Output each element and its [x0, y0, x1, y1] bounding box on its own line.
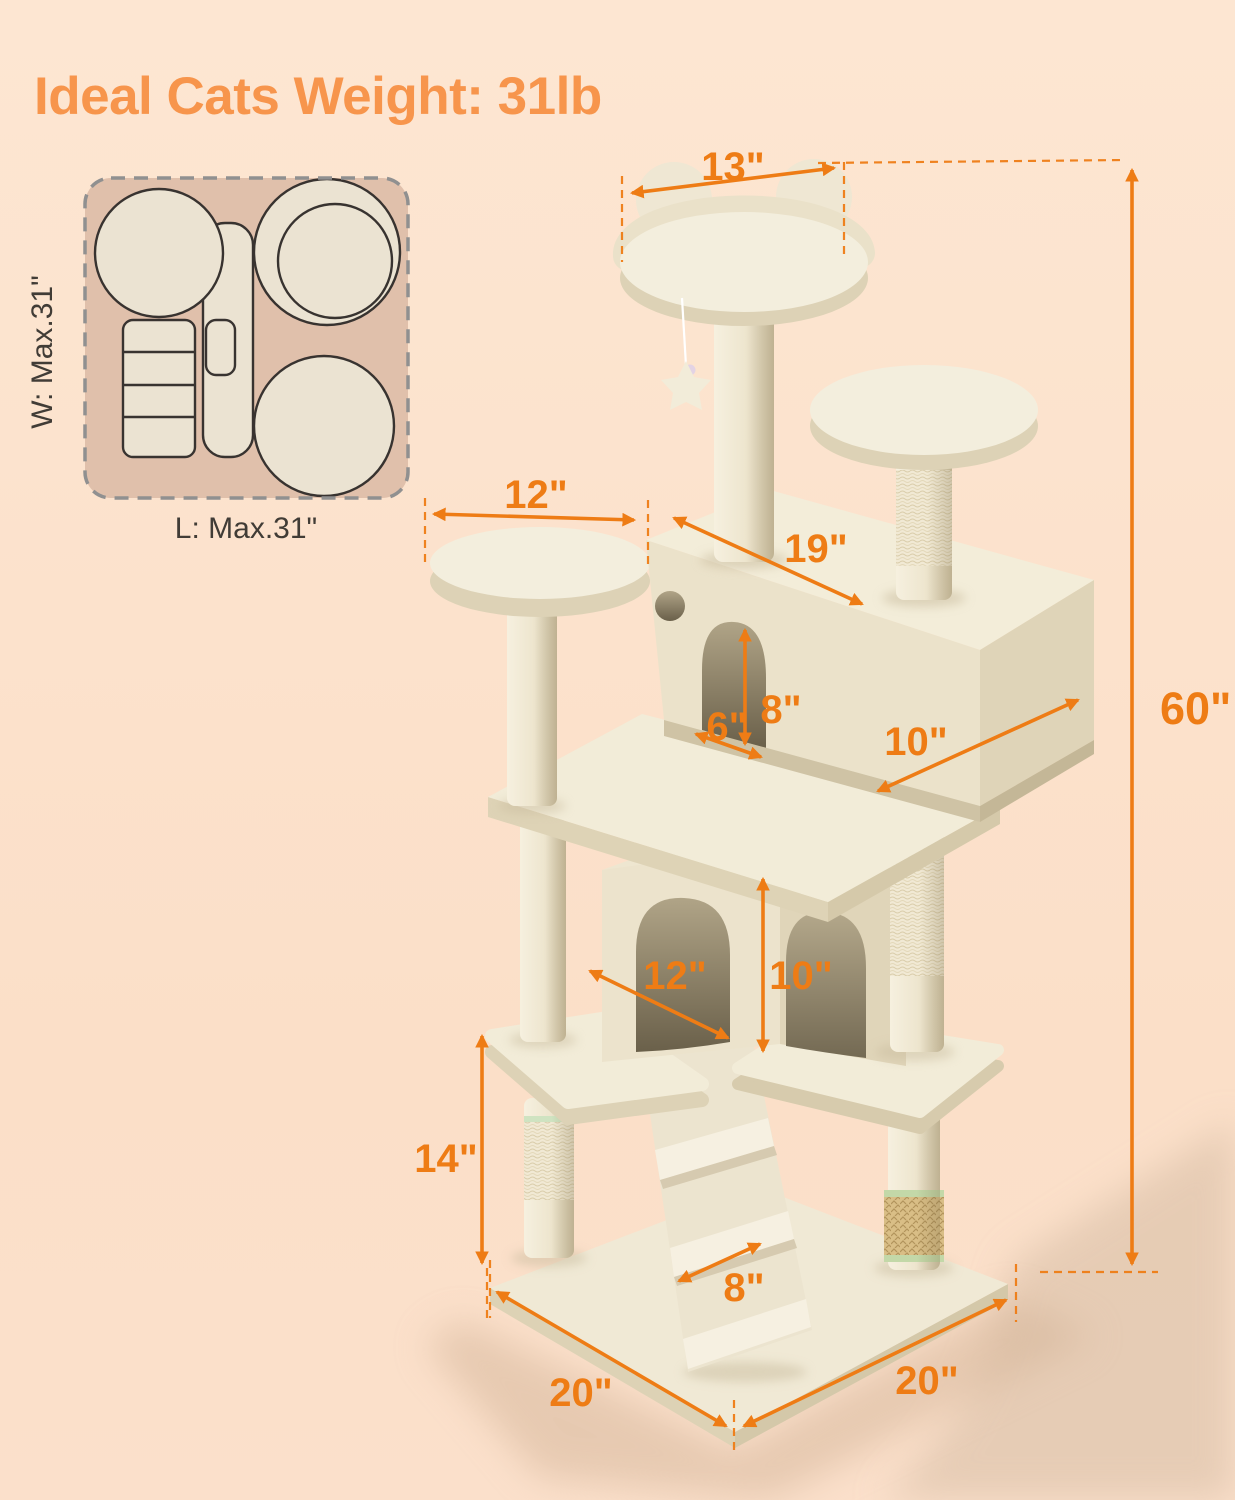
dimension-label: 12": [504, 473, 567, 517]
dimension-label: 6": [706, 705, 747, 749]
top-view-perch-inner: [278, 204, 392, 318]
condo-window-hole: [655, 591, 685, 621]
dimension-label: 19": [784, 527, 847, 571]
top-post: [714, 296, 774, 562]
mid-left-post: [520, 818, 566, 1042]
top-view-panel: W: Max.31" L: Max.31": [26, 178, 408, 545]
dimension-label: 10": [884, 720, 947, 764]
dim-scratching-post-height: 14": [414, 1036, 487, 1322]
dimension-label: 14": [414, 1137, 477, 1181]
dimension-label: 10": [769, 954, 832, 998]
top-view-platform-circle: [95, 189, 223, 317]
upper-right-post: [896, 448, 952, 600]
top-view-platform-circle: [254, 356, 394, 496]
top-view-post: [206, 320, 235, 375]
dimension-label: 8": [723, 1266, 764, 1310]
dimension-label: 20": [549, 1371, 612, 1415]
upper-left-post: [498, 586, 566, 814]
top-view-width-label: W: Max.31": [26, 275, 59, 428]
extension-line: [818, 160, 1124, 163]
dimension-label: 8": [760, 688, 801, 732]
product-illustration: W: Max.31" L: Max.31" 13" 12" 19" 6" 8": [0, 0, 1235, 1500]
top-view-ramp: [123, 320, 195, 457]
upper-left-round-platform: [430, 527, 650, 617]
dimension-label: 20": [895, 1359, 958, 1403]
product-infographic: W: Max.31" L: Max.31" 13" 12" 19" 6" 8": [0, 0, 1235, 1500]
top-view-length-label: L: Max.31": [175, 512, 317, 545]
dimension-label: 13": [701, 145, 764, 189]
dimension-label: 60": [1160, 683, 1231, 734]
cat-tree: [430, 159, 1094, 1448]
page-title: Ideal Cats Weight: 31lb: [34, 66, 602, 127]
upper-right-round-platform: [810, 365, 1038, 470]
dimension-label: 12": [643, 954, 706, 998]
